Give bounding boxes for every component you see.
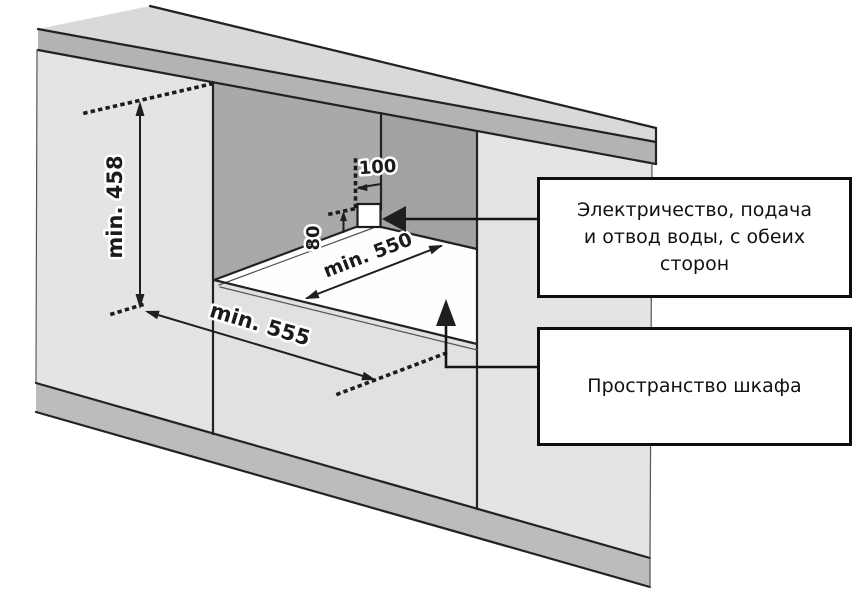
installation-diagram: min. 458 min. 555 min. 550 100 80 bbox=[0, 0, 867, 609]
callout-utilities: Электричество, подача и отвод воды, с об… bbox=[537, 177, 852, 298]
dim-height-label: min. 458 bbox=[103, 155, 127, 258]
callout-cabinet-label: Пространство шкафа bbox=[587, 373, 801, 400]
callout-utilities-line-1: Электричество, подача bbox=[577, 197, 812, 224]
service-connection-box bbox=[358, 204, 381, 227]
callout-utilities-line-3: сторон bbox=[660, 251, 729, 278]
left-panel-left-edge bbox=[36, 50, 37, 383]
callout-utilities-line-2: и отвод воды, с обеих bbox=[584, 224, 805, 251]
dim-offset-label: 100 bbox=[358, 156, 397, 180]
callout-cabinet-space: Пространство шкафа bbox=[537, 327, 852, 446]
niche-side-wall bbox=[381, 113, 477, 249]
cabinet-drawing: min. 458 min. 555 min. 550 100 80 bbox=[0, 0, 867, 609]
dim-service-height-label: 80 bbox=[303, 225, 324, 250]
